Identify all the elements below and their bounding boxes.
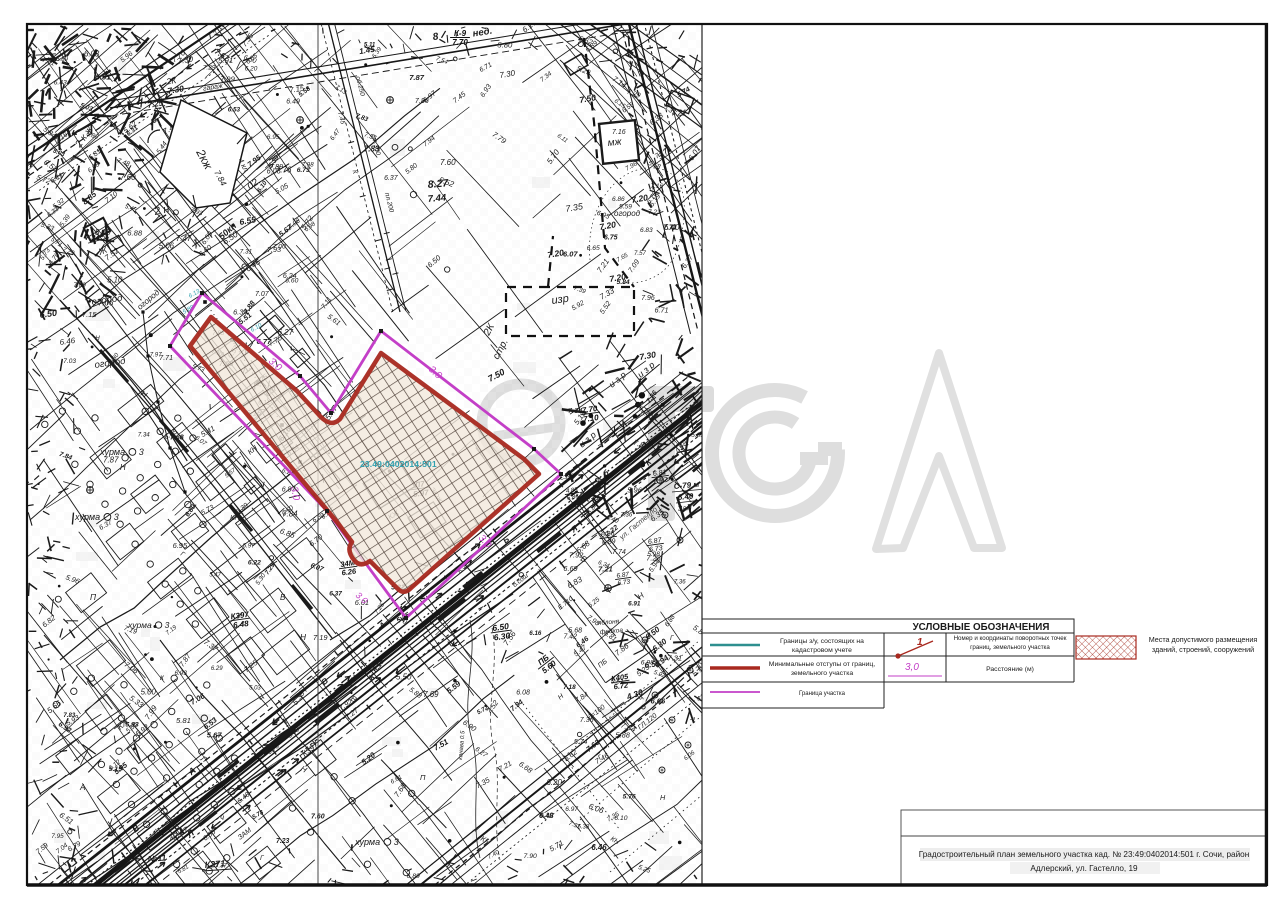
svg-text:огород: огород xyxy=(614,209,641,218)
svg-text:Зам: Зам xyxy=(677,503,692,513)
svg-text:изр: изр xyxy=(551,293,570,307)
svg-text:6.60: 6.60 xyxy=(285,278,298,285)
svg-text:7.83: 7.83 xyxy=(63,713,75,719)
svg-text:23.49:0402014:501: 23.49:0402014:501 xyxy=(360,459,437,469)
svg-text:6.08: 6.08 xyxy=(516,688,530,696)
svg-text:7.36: 7.36 xyxy=(674,580,686,586)
svg-text:границ, земельного участка: границ, земельного участка xyxy=(970,644,1050,651)
svg-text:6.10: 6.10 xyxy=(540,812,553,819)
svg-text:5.80: 5.80 xyxy=(497,41,513,50)
svg-text:5.74: 5.74 xyxy=(574,739,588,746)
svg-text:5.10: 5.10 xyxy=(107,275,123,284)
svg-text:6.71: 6.71 xyxy=(655,305,669,314)
svg-text:хурма: хурма xyxy=(127,620,152,630)
svg-text:7.57: 7.57 xyxy=(634,250,646,257)
svg-text:7.69: 7.69 xyxy=(423,690,439,699)
svg-text:зданий, строений, сооружений: зданий, строений, сооружений xyxy=(1152,645,1254,654)
svg-text:Н: Н xyxy=(300,632,307,642)
svg-text:7.99: 7.99 xyxy=(220,75,235,84)
svg-text:3: 3 xyxy=(139,447,144,457)
svg-text:7.29: 7.29 xyxy=(203,65,216,72)
svg-text:5.67: 5.67 xyxy=(207,731,223,740)
svg-text:7.98: 7.98 xyxy=(302,162,315,169)
svg-text:Места допустимого размещения: Места допустимого размещения xyxy=(1149,635,1258,644)
svg-text:6.53: 6.53 xyxy=(228,106,241,113)
svg-text:8.10: 8.10 xyxy=(95,228,111,237)
svg-text:земельного участка: земельного участка xyxy=(791,670,853,677)
svg-text:1: 1 xyxy=(917,637,923,648)
svg-text:6.91: 6.91 xyxy=(628,600,641,607)
svg-text:5.19: 5.19 xyxy=(109,766,122,773)
svg-text:П: П xyxy=(90,592,97,602)
svg-text:6.69: 6.69 xyxy=(563,564,577,573)
svg-text:6.46: 6.46 xyxy=(591,843,607,852)
svg-text:3: 3 xyxy=(114,512,119,522)
svg-text:5.38: 5.38 xyxy=(578,824,590,830)
svg-text:6.66: 6.66 xyxy=(651,697,666,706)
svg-text:Н: Н xyxy=(660,793,666,802)
svg-text:5.03: 5.03 xyxy=(249,686,261,692)
svg-text:6.29: 6.29 xyxy=(211,666,223,672)
svg-text:6.95: 6.95 xyxy=(267,134,280,141)
svg-text:6.37: 6.37 xyxy=(384,175,399,182)
svg-text:6.83: 6.83 xyxy=(640,227,653,234)
svg-text:6.75: 6.75 xyxy=(604,235,618,242)
svg-text:6.16: 6.16 xyxy=(529,630,542,637)
svg-text:Границы з/у, состоящих на: Границы з/у, состоящих на xyxy=(780,638,864,645)
svg-text:Градостроительный план земельн: Градостроительный план земельного участк… xyxy=(919,850,1249,859)
svg-text:хурма: хурма xyxy=(99,447,125,457)
svg-text:7.23: 7.23 xyxy=(276,838,290,845)
svg-text:6.20: 6.20 xyxy=(547,778,563,787)
svg-text:Г: Г xyxy=(670,635,674,642)
svg-text:кадастровом учете: кадастровом учете xyxy=(792,647,852,654)
svg-text:7.31: 7.31 xyxy=(240,249,253,256)
svg-text:6.40: 6.40 xyxy=(677,492,694,502)
svg-text:6.97: 6.97 xyxy=(565,806,578,813)
svg-text:№11: №11 xyxy=(147,852,167,864)
svg-text:6.88: 6.88 xyxy=(127,229,143,238)
svg-text:6.07: 6.07 xyxy=(563,250,578,259)
svg-text:7.70: 7.70 xyxy=(452,38,468,47)
svg-text:7.74: 7.74 xyxy=(612,548,626,556)
svg-text:А: А xyxy=(79,783,85,792)
svg-text:6.89: 6.89 xyxy=(407,873,420,880)
svg-text:7.95: 7.95 xyxy=(51,833,64,840)
svg-text:6.65: 6.65 xyxy=(587,245,600,252)
svg-text:7.90: 7.90 xyxy=(524,853,537,860)
svg-text:К271: К271 xyxy=(204,858,225,870)
svg-text:7.23: 7.23 xyxy=(648,209,661,216)
svg-text:7.16: 7.16 xyxy=(612,129,626,136)
svg-text:7.60: 7.60 xyxy=(120,173,136,182)
svg-text:6.49: 6.49 xyxy=(286,99,300,106)
svg-text:8.27: 8.27 xyxy=(427,177,450,191)
svg-text:6.10: 6.10 xyxy=(614,815,627,822)
svg-text:6.86: 6.86 xyxy=(612,196,625,203)
svg-text:Минимальные отступы от границ,: Минимальные отступы от границ, xyxy=(769,661,875,668)
svg-text:5.81: 5.81 xyxy=(176,716,191,725)
svg-text:7.19: 7.19 xyxy=(313,633,328,642)
svg-text:6.20: 6.20 xyxy=(245,65,258,72)
svg-text:7.96: 7.96 xyxy=(641,295,655,302)
svg-text:7.87: 7.87 xyxy=(409,73,425,82)
svg-text:5.00: 5.00 xyxy=(141,688,157,697)
svg-text:Расстояние (м): Расстояние (м) xyxy=(986,666,1034,673)
svg-text:хурма: хурма xyxy=(74,512,100,522)
svg-text:5.96: 5.96 xyxy=(627,486,642,495)
svg-text:7.84: 7.84 xyxy=(282,510,298,519)
svg-text:7.97: 7.97 xyxy=(150,352,163,359)
svg-text:Адлерский, ул. Гастелло, 19: Адлерский, ул. Гастелло, 19 xyxy=(1030,864,1138,873)
svg-text:7.21: 7.21 xyxy=(598,564,613,573)
svg-text:7.44: 7.44 xyxy=(427,192,447,205)
svg-text:мж: мж xyxy=(607,136,623,148)
svg-text:7.03: 7.03 xyxy=(63,358,76,365)
svg-text:6.34: 6.34 xyxy=(233,308,247,317)
svg-text:5.91: 5.91 xyxy=(218,56,233,65)
svg-text:П: П xyxy=(420,773,426,782)
svg-text:5.98: 5.98 xyxy=(641,411,654,418)
svg-text:7.34: 7.34 xyxy=(138,432,151,439)
svg-text:хурма: хурма xyxy=(354,837,380,847)
svg-text:К-9: К-9 xyxy=(454,29,467,38)
svg-text:7.60: 7.60 xyxy=(440,158,456,167)
svg-text:7.07: 7.07 xyxy=(255,291,270,298)
svg-text:5.76: 5.76 xyxy=(623,794,636,801)
svg-text:7.15: 7.15 xyxy=(82,310,97,319)
svg-text:7.18: 7.18 xyxy=(563,684,576,691)
svg-text:3,0: 3,0 xyxy=(905,662,919,673)
svg-text:6.37: 6.37 xyxy=(329,590,342,597)
svg-text:УСЛОВНЫЕ ОБОЗНАЧЕНИЯ: УСЛОВНЫЕ ОБОЗНАЧЕНИЯ xyxy=(913,622,1050,633)
svg-text:3: 3 xyxy=(394,837,399,847)
svg-text:7.42: 7.42 xyxy=(564,634,578,641)
svg-text:Граница участка: Граница участка xyxy=(799,691,846,697)
svg-text:Номер и координаты поворотных: Номер и координаты поворотных точек xyxy=(954,635,1067,642)
svg-text:3: 3 xyxy=(165,620,170,630)
svg-text:6.40: 6.40 xyxy=(664,223,680,232)
svg-text:7.36: 7.36 xyxy=(621,512,633,518)
